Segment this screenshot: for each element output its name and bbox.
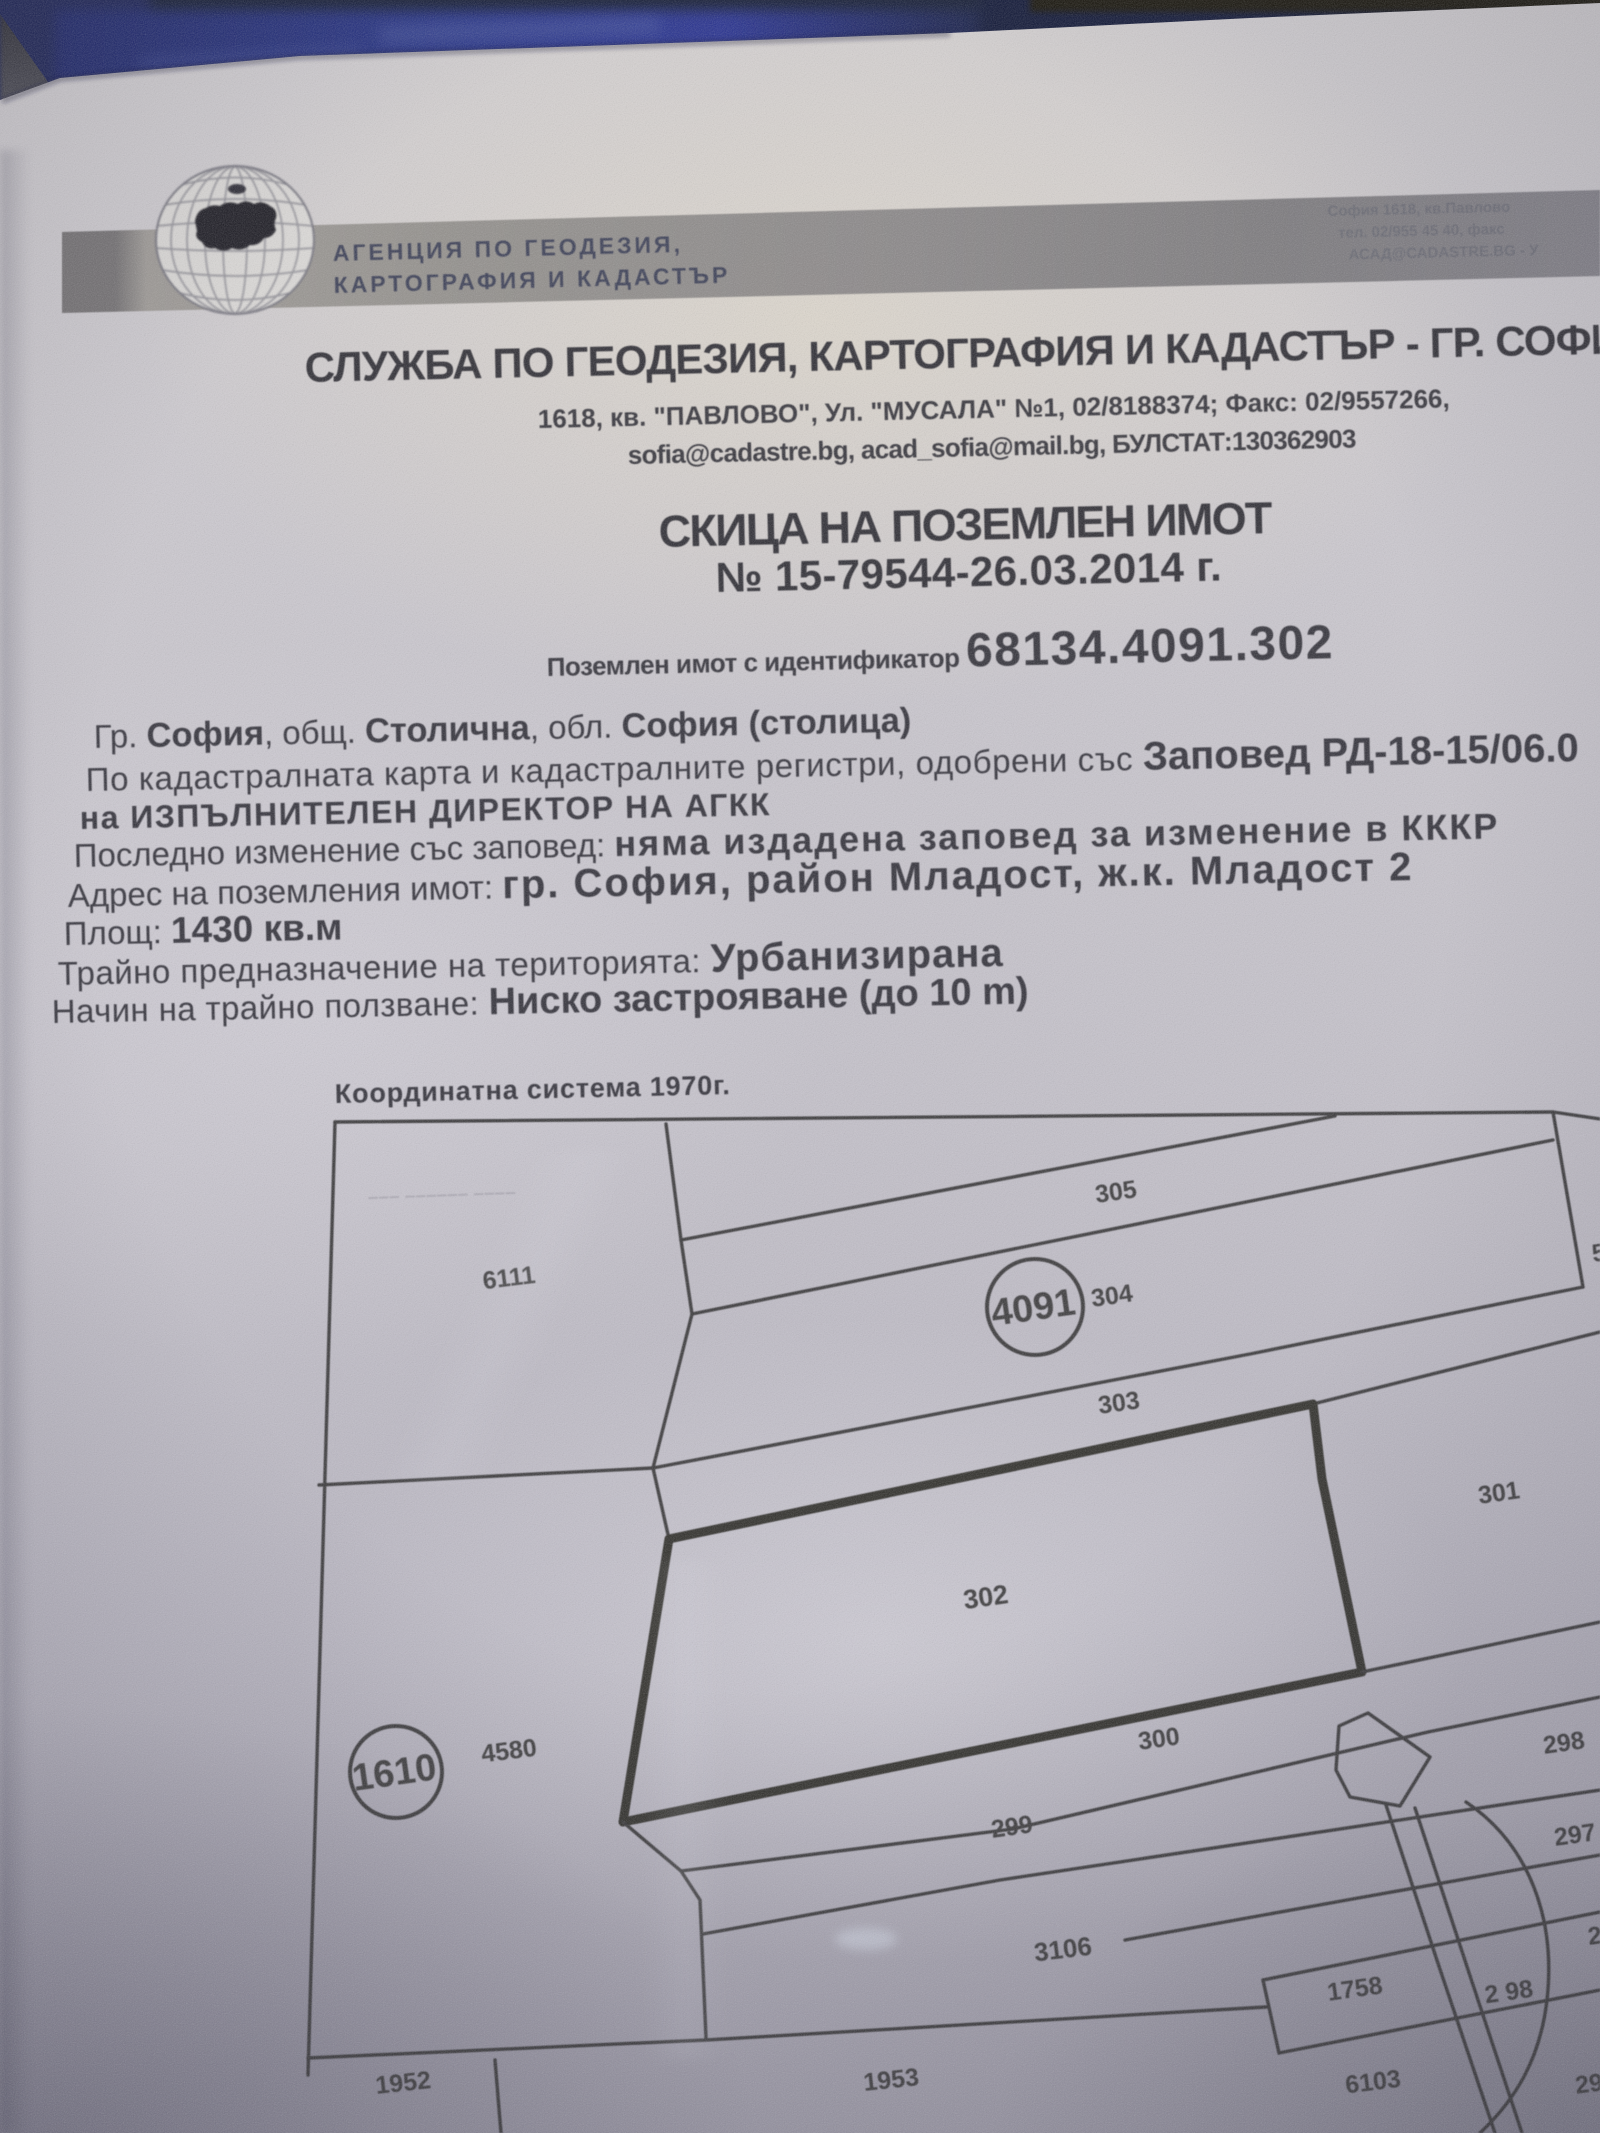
svg-text:6103: 6103 — [1344, 2065, 1403, 2100]
svg-text:302: 302 — [961, 1579, 1010, 1615]
svg-text:4580: 4580 — [480, 1734, 539, 1769]
svg-text:298: 298 — [1541, 1726, 1586, 1760]
svg-text:5: 5 — [1590, 1238, 1600, 1268]
svg-text:СЛУЖБА ПО ГЕОДЕЗИЯ, КАРТОГРАФИ: СЛУЖБА ПО ГЕОДЕЗИЯ, КАРТОГРАФИЯ И КАДАСТ… — [304, 315, 1600, 391]
svg-text:3106: 3106 — [1032, 1931, 1093, 1968]
svg-text:2: 2 — [1586, 1921, 1600, 1951]
svg-text:4091: 4091 — [989, 1281, 1079, 1334]
svg-text:1610: 1610 — [350, 1746, 440, 1799]
svg-text:304: 304 — [1089, 1279, 1134, 1313]
svg-text:Площ: 1430 кв.м: Площ: 1430 кв.м — [63, 906, 342, 953]
svg-text:1758: 1758 — [1325, 1971, 1384, 2006]
svg-text:300: 300 — [1136, 1722, 1181, 1756]
svg-text:1953: 1953 — [862, 2063, 920, 2097]
svg-text:sofia@cadastre.bg, acad_sofia@: sofia@cadastre.bg, acad_sofia@mail.bg, Б… — [627, 423, 1356, 470]
svg-text:Координатна система 1970г.: Координатна система 1970г. — [334, 1070, 731, 1109]
svg-text:303: 303 — [1096, 1386, 1141, 1420]
svg-text:297: 297 — [1552, 1818, 1597, 1852]
svg-text:305: 305 — [1093, 1175, 1138, 1209]
svg-text:299: 299 — [989, 1810, 1034, 1844]
svg-text:Поземлен имот с идентификатор: Поземлен имот с идентификатор 68134.4091… — [546, 616, 1334, 687]
svg-text:29: 29 — [1574, 2068, 1600, 2099]
svg-text:1952: 1952 — [374, 2066, 432, 2100]
svg-text:301: 301 — [1476, 1476, 1521, 1510]
